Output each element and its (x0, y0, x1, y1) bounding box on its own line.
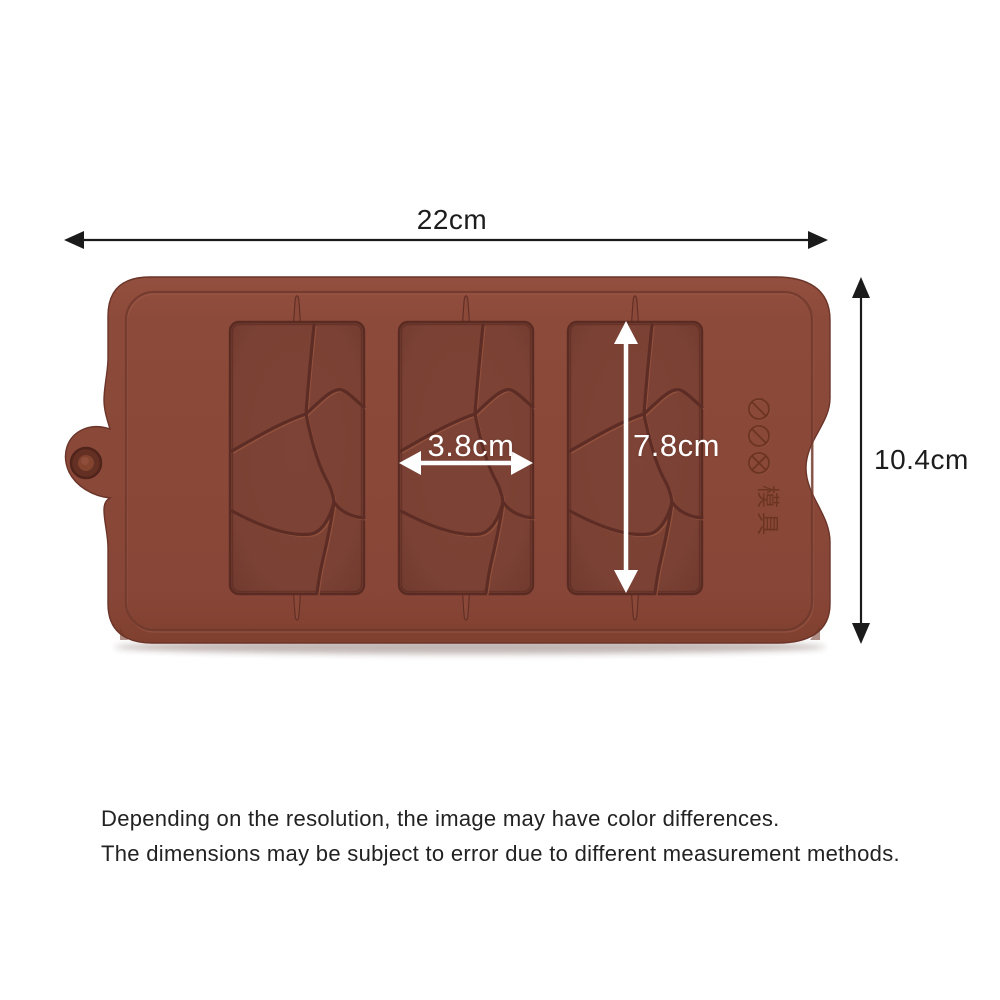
overall-height-label: 10.4cm (874, 445, 969, 476)
disclaimer-line-1: Depending on the resolution, the image m… (101, 806, 780, 832)
product-image: 模具 22cm 10.4cm 3.8cm 7.8cm Depending o (0, 0, 1000, 1000)
disclaimer-line-2: The dimensions may be subject to error d… (101, 841, 900, 867)
mold-cavity (230, 322, 366, 595)
cavity-width-label: 3.8cm (428, 430, 515, 463)
height-arrow (852, 277, 870, 644)
overall-width-label: 22cm (417, 205, 487, 236)
hanging-hole (70, 447, 102, 479)
cavity-height-label: 7.8cm (633, 430, 720, 463)
embossed-text: 模具 (754, 485, 780, 539)
